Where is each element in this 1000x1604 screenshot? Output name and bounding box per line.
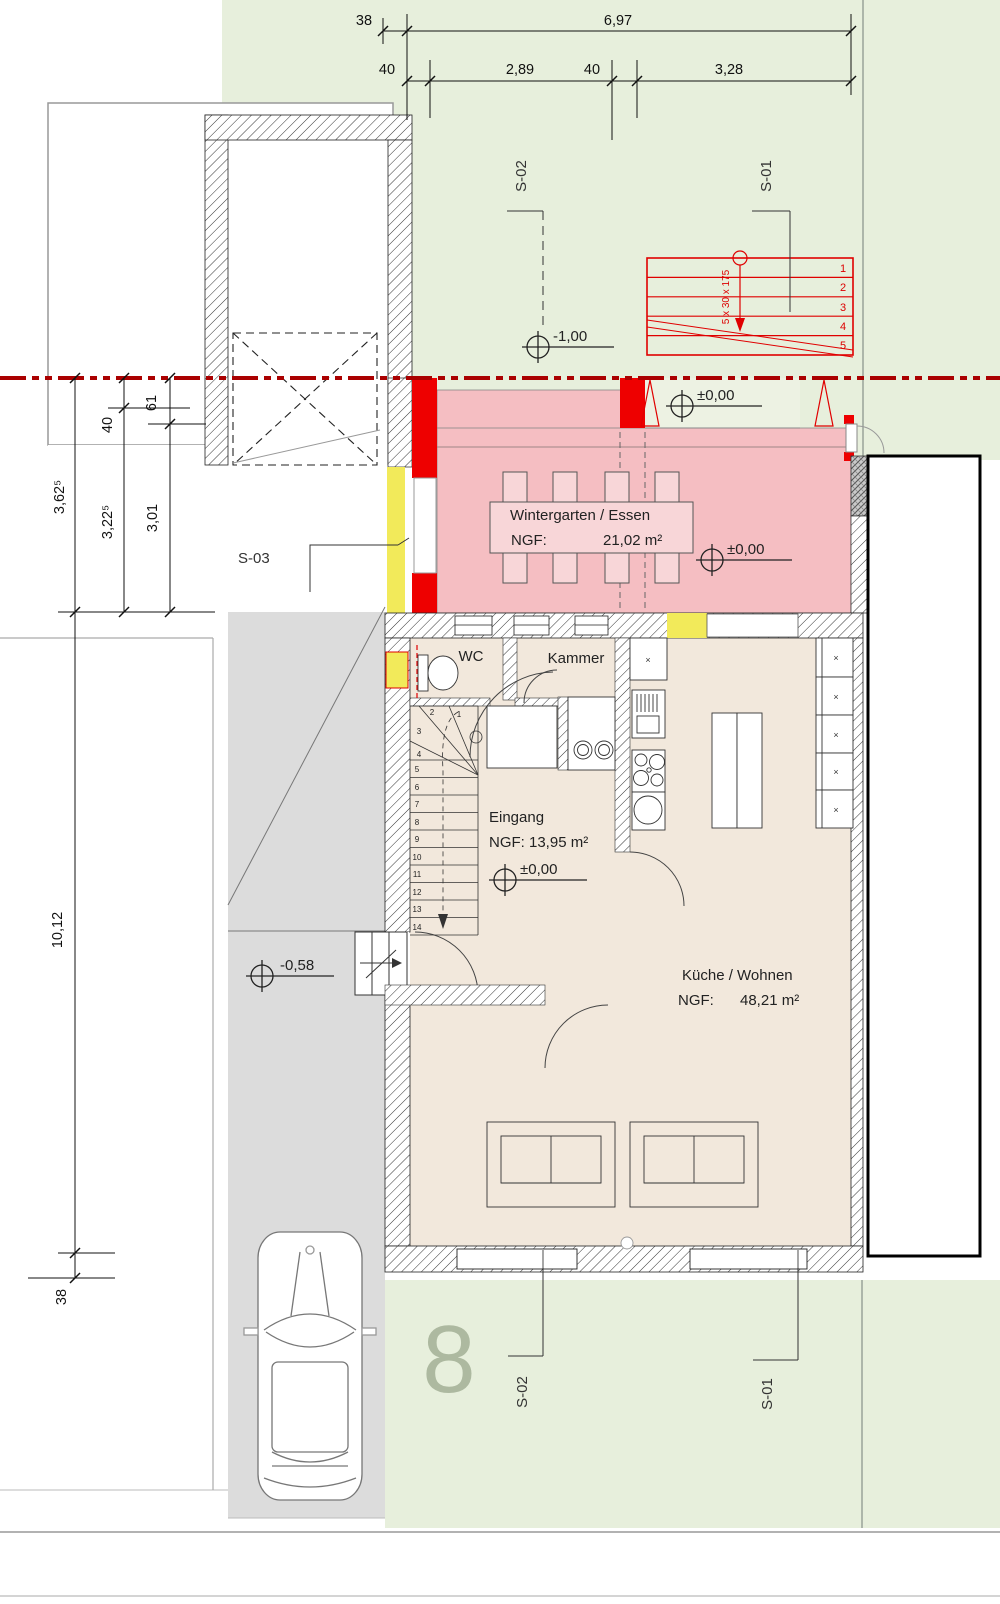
kueche-label: Küche / Wohnen — [682, 967, 793, 984]
svg-text:10,12: 10,12 — [50, 912, 66, 948]
niche-wall — [558, 697, 568, 770]
level-label-zero: ±0,00 — [727, 541, 764, 558]
svg-text:1: 1 — [457, 710, 462, 719]
svg-text:2,89: 2,89 — [506, 62, 534, 78]
outdoor-step-1: 1 — [840, 263, 846, 275]
car-mirror-left — [244, 1328, 258, 1335]
column-marker — [621, 1237, 633, 1249]
wintergarten-ngf-label: NGF: — [511, 532, 547, 549]
wc-window-yellow — [386, 652, 408, 688]
svg-text:S-01: S-01 — [758, 160, 775, 192]
floor-plan-drawing: Wintergarten / Essen NGF: 21,02 m² 1 2 3… — [0, 0, 1000, 1604]
svg-text:×: × — [833, 730, 838, 740]
svg-text:S-02: S-02 — [513, 160, 530, 192]
eingang-south-wall — [385, 985, 545, 1005]
toilet-bowl — [428, 656, 458, 690]
svg-text:S-01: S-01 — [759, 1378, 776, 1410]
svg-text:3,01: 3,01 — [145, 504, 161, 532]
opening-to-wintergarten — [707, 614, 798, 637]
svg-text:61: 61 — [144, 395, 160, 411]
outdoor-step-5: 5 — [840, 340, 846, 352]
west-wall-lower — [385, 995, 410, 1246]
svg-text:×: × — [833, 653, 838, 663]
new-wall-red — [412, 573, 437, 613]
kueche-area: 48,21 m² — [740, 992, 799, 1009]
svg-text:3,62⁵: 3,62⁵ — [52, 480, 68, 514]
new-wall-pier-red — [620, 378, 645, 428]
svg-text:5: 5 — [415, 765, 420, 774]
eingang-ngf: NGF: 13,95 m² — [489, 834, 588, 851]
svg-text:38: 38 — [356, 13, 372, 29]
kammer-label: Kammer — [548, 650, 605, 667]
understair-closet — [487, 706, 557, 768]
outdoor-step-4: 4 — [840, 321, 846, 333]
svg-text:S-03: S-03 — [238, 550, 270, 567]
svg-text:12: 12 — [413, 888, 422, 897]
wc-label: WC — [459, 648, 484, 665]
existing-wall — [388, 378, 412, 467]
svg-text:×: × — [833, 805, 838, 815]
sofa-right — [630, 1122, 758, 1207]
level-label-minus-058: -0,58 — [280, 957, 314, 974]
side-door — [846, 424, 857, 452]
level-label-minus-100: -1,00 — [553, 328, 587, 345]
svg-text:3,28: 3,28 — [715, 62, 743, 78]
floor-plan-canvas: Wintergarten / Essen NGF: 21,02 m² 1 2 3… — [0, 0, 1000, 1604]
neighbor-building — [868, 456, 980, 1256]
terrace-door — [414, 478, 436, 573]
level-label-zero: ±0,00 — [520, 861, 557, 878]
svg-text:4: 4 — [417, 750, 422, 759]
car — [244, 1232, 376, 1500]
house-number: 8 — [422, 1306, 475, 1413]
svg-text:7: 7 — [415, 800, 420, 809]
kitchen-island — [737, 713, 762, 828]
svg-text:8: 8 — [415, 818, 420, 827]
sofa-left — [487, 1122, 615, 1207]
svg-text:6: 6 — [415, 783, 420, 792]
svg-text:14: 14 — [413, 923, 422, 932]
kueche-ngf-label: NGF: — [678, 992, 714, 1009]
outdoor-stair-note: 5 x 30 x 175 — [721, 269, 732, 324]
svg-text:3: 3 — [417, 727, 422, 736]
kitchen-island — [712, 713, 737, 828]
level-label-zero: ±0,00 — [697, 387, 734, 404]
svg-text:×: × — [645, 655, 650, 665]
garage — [205, 115, 412, 465]
wintergarten-label: Wintergarten / Essen — [510, 507, 650, 524]
car-mirror-right — [362, 1328, 376, 1335]
demolition-yellow-segment — [667, 613, 707, 638]
toilet-tank — [418, 655, 428, 691]
new-wall-red — [412, 378, 437, 478]
svg-text:10: 10 — [413, 853, 422, 862]
wc-south-wall — [410, 698, 490, 706]
svg-text:40: 40 — [379, 62, 395, 78]
svg-text:40: 40 — [100, 417, 116, 433]
eingang-label: Eingang — [489, 809, 544, 826]
wc-east-wall — [503, 638, 517, 700]
svg-text:9: 9 — [415, 835, 420, 844]
svg-text:S-02: S-02 — [514, 1376, 531, 1408]
svg-text:×: × — [833, 767, 838, 777]
svg-text:3,22⁵: 3,22⁵ — [100, 505, 116, 539]
kitchen-wall — [615, 638, 630, 852]
svg-text:2: 2 — [430, 708, 435, 717]
svg-text:40: 40 — [584, 62, 600, 78]
niche-counter — [568, 697, 615, 770]
demolition-wall-yellow — [387, 467, 405, 613]
svg-text:13: 13 — [413, 905, 422, 914]
svg-text:38: 38 — [54, 1289, 70, 1305]
north-windows — [455, 616, 608, 635]
wintergarten-area: 21,02 m² — [603, 532, 662, 549]
outdoor-step-3: 3 — [840, 302, 846, 314]
svg-text:11: 11 — [413, 870, 422, 879]
svg-text:6,97: 6,97 — [604, 13, 632, 29]
outdoor-step-2: 2 — [840, 282, 846, 294]
svg-text:×: × — [833, 692, 838, 702]
